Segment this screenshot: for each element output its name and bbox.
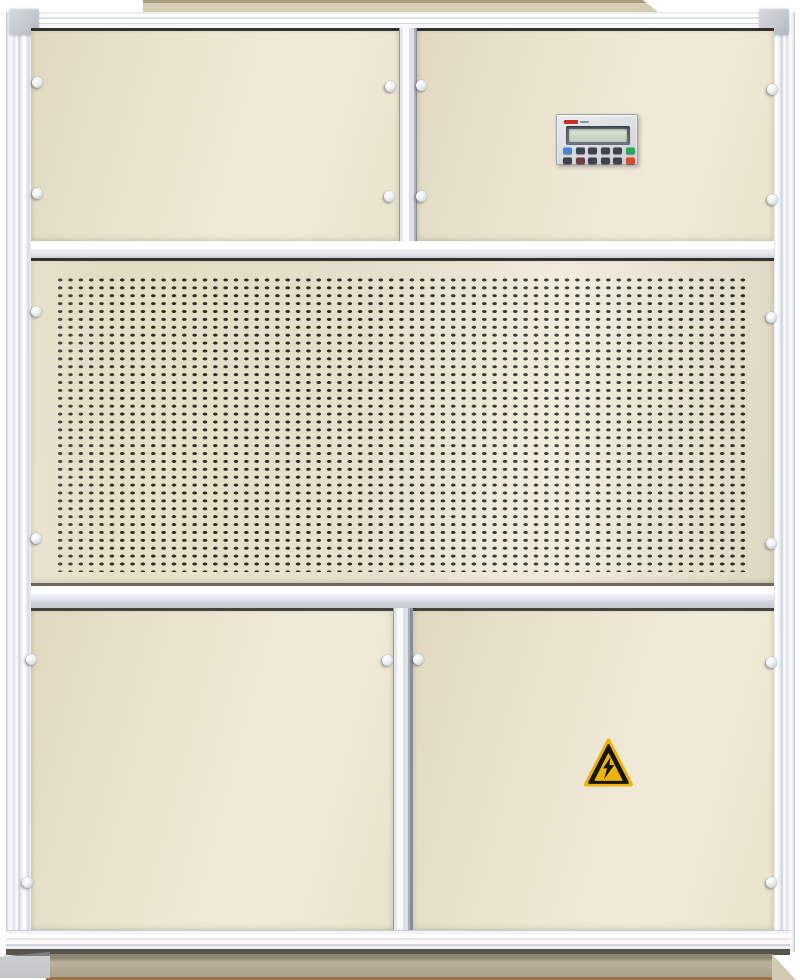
electrical-hazard-icon: [584, 737, 633, 789]
lcd-display-frame: [566, 126, 630, 145]
panel-fastener: [766, 312, 777, 323]
panel-fastener: [26, 654, 37, 665]
panel-fastener: [32, 77, 43, 88]
cabinet: [0, 0, 800, 980]
keypad-button: [588, 147, 597, 154]
panel-fastener: [22, 877, 33, 888]
base-left-foot: [0, 952, 50, 978]
keypad-button: [563, 147, 572, 154]
panel-fastener: [416, 80, 427, 91]
panel-fastener: [767, 194, 778, 205]
keypad-button: [626, 147, 635, 154]
frame-rail-top: [6, 12, 795, 28]
panel-fastener: [767, 84, 778, 95]
panel-fastener: [413, 654, 424, 665]
keypad-button: [563, 157, 572, 164]
grille-panel: [31, 258, 774, 586]
base-plinth: [46, 954, 772, 980]
lcd-controller: [556, 114, 638, 165]
panel-fastener: [32, 188, 43, 199]
keypad: [563, 147, 635, 164]
panel-fastener: [766, 538, 777, 549]
lower-door-divider: [393, 608, 413, 930]
keypad-button: [601, 157, 610, 164]
upper-panel-divider: [399, 28, 417, 241]
electrical-hazard-sticker: [584, 737, 633, 789]
keypad-row: [563, 147, 635, 154]
frame-rail-mid-1: [31, 241, 774, 258]
panel-fastener: [766, 657, 777, 668]
keypad-row: [563, 157, 635, 164]
upper-panel-left: [31, 28, 399, 241]
keypad-button: [588, 157, 597, 164]
keypad-button: [626, 157, 635, 164]
keypad-button: [613, 157, 622, 164]
panel-fastener: [385, 81, 396, 92]
brand-mark: [564, 120, 578, 124]
frame-rail-right: [772, 12, 795, 952]
panel-fastener: [766, 877, 777, 888]
lcd-screen: [569, 129, 627, 142]
panel-fastener: [416, 191, 427, 202]
panel-fastener: [31, 533, 42, 544]
panel-fastener: [382, 655, 393, 666]
keypad-button: [601, 147, 610, 154]
panel-fastener: [384, 191, 395, 202]
keypad-button: [576, 157, 585, 164]
lower-door-left: [31, 608, 393, 930]
keypad-button: [613, 147, 622, 154]
brand-mark-sub: [580, 121, 589, 123]
keypad-button: [576, 147, 585, 154]
frame-rail-left: [6, 12, 31, 952]
base-right-edge: [772, 954, 796, 980]
frame-rail-mid-2: [31, 586, 774, 608]
grille-reflection: [31, 261, 774, 583]
panel-fastener: [31, 306, 42, 317]
